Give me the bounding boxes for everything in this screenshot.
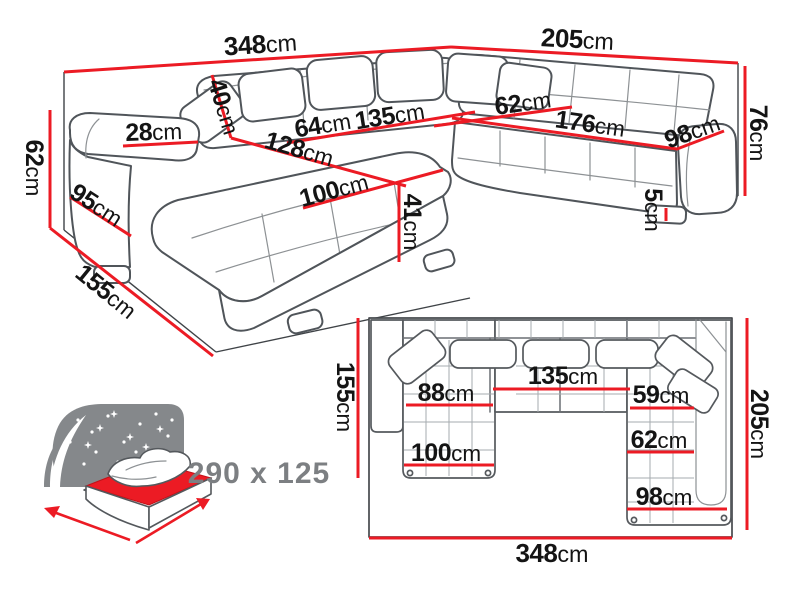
sleeping-function-badge: 290 x 125 [44,404,330,543]
perspective-view: 348cm 205cm 76cm 62cm 155cm 95cm 28cm 40… [20,22,772,356]
diagram-canvas: 348cm 205cm 76cm 62cm 155cm 95cm 28cm 40… [0,0,800,600]
plan-label-98: 98cm [636,483,693,511]
plan-label-100: 100cm [411,439,481,467]
plan-label-62: 62cm [631,426,688,454]
plan-label-205: 205cm [745,389,773,459]
sofa-foot [422,248,456,273]
pillow [596,340,658,368]
pillow [450,340,516,368]
plan-label-135: 135cm [528,362,598,390]
plan-view: 155cm 205cm 348cm 88cm 135cm 59cm 100cm … [331,318,773,568]
sleeping-area-label: 290 x 125 [188,457,330,490]
plan-label-59: 59cm [633,381,690,409]
dim-label-62-left: 62cm [20,140,48,197]
plan-label-155: 155cm [331,362,359,432]
pillow [306,55,376,111]
plan-label-348: 348cm [515,538,588,568]
sofa-dimensions-diagram: 348cm 205cm 76cm 62cm 155cm 95cm 28cm 40… [0,0,800,600]
dim-label-205: 205cm [540,22,615,56]
sofa-3d-drawing [69,49,737,335]
dim-label-76: 76cm [744,105,772,162]
plan-label-88: 88cm [418,379,475,407]
pillow [376,49,445,102]
dim-label-28: 28cm [125,117,183,147]
dim-label-5: 5cm [639,188,667,231]
dim-label-41: 41cm [398,194,426,251]
